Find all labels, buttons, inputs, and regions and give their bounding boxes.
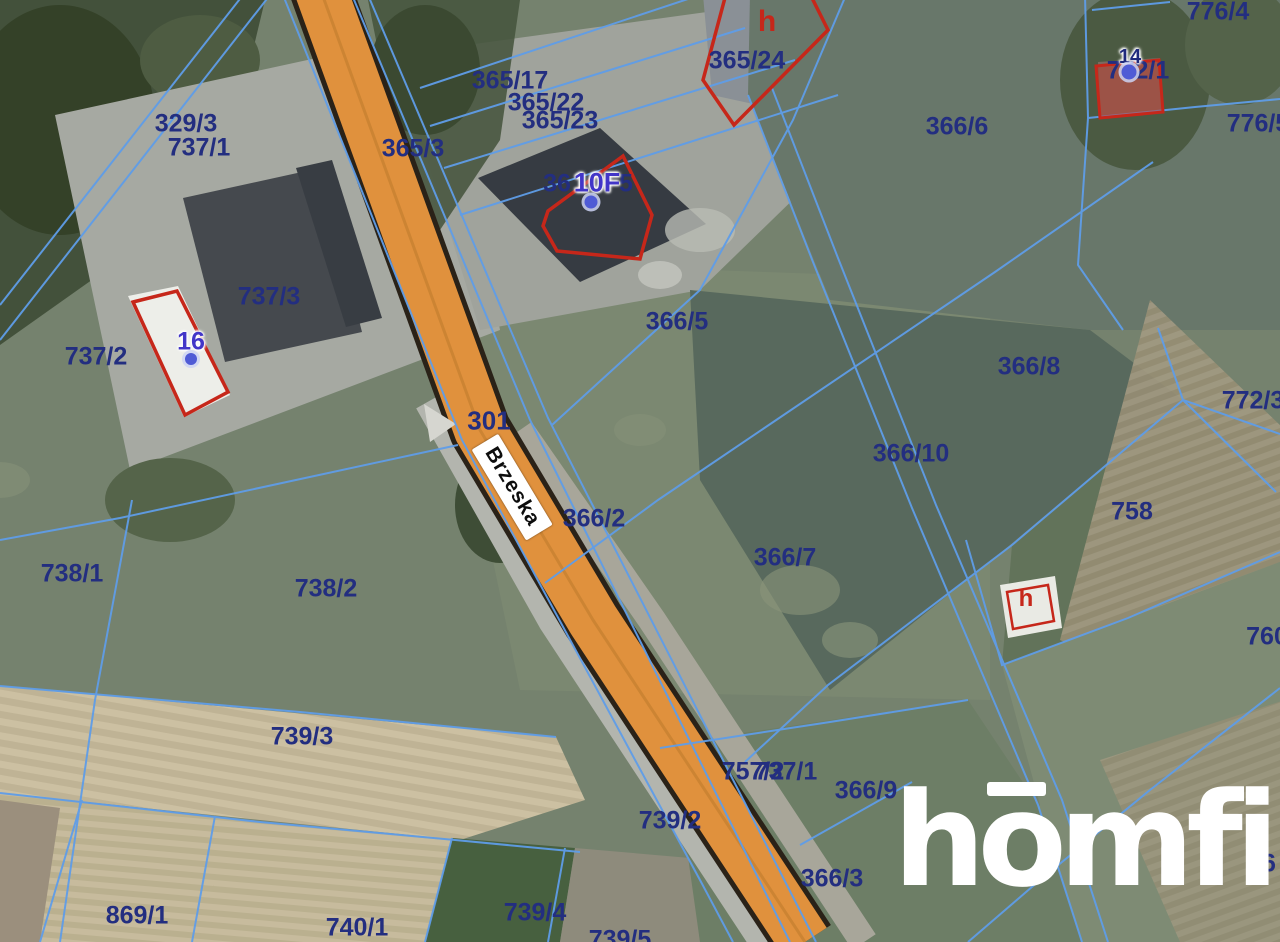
- parcel-label-365-3: 365/3: [382, 137, 445, 162]
- parcel-label-739-3: 739/3: [271, 725, 334, 750]
- address-point-10F: [585, 196, 598, 209]
- parcel-label-366-9: 366/9: [835, 779, 898, 804]
- parcel-label-760: 760: [1246, 625, 1280, 650]
- logo-letter-h: h: [893, 764, 978, 916]
- parcel-label-366-2: 366/2: [563, 507, 626, 532]
- address-point-16: [185, 353, 197, 365]
- parcel-label-366-10: 366/10: [873, 442, 949, 467]
- homfi-logo-watermark: homfi: [893, 775, 1271, 905]
- parcel-label-737-2: 737/2: [65, 345, 128, 370]
- cadastral-aerial-map[interactable]: 329/3737/1365/17365/22365/23365/3365/243…: [0, 0, 1280, 942]
- parcel-label-739-2: 739/2: [639, 809, 702, 834]
- parcel-label-772-3: 772/3: [1222, 389, 1280, 414]
- parcel-label-737-1b: 737/1: [755, 760, 818, 785]
- logo-letter-o-macron: o: [978, 775, 1059, 905]
- parcel-label-366-3: 366/3: [801, 867, 864, 892]
- parcel-label-365-23: 365/23: [522, 109, 598, 134]
- parcel-label-365-24: 365/24: [709, 49, 785, 74]
- parcel-label-776-5: 776/5: [1227, 112, 1280, 137]
- building-label-h-top: h: [758, 7, 776, 37]
- parcel-label-737-3: 737/3: [238, 285, 301, 310]
- parcel-label-739-4: 739/4: [504, 901, 567, 926]
- route-number-label: 301: [467, 406, 510, 437]
- parcel-label-366-5: 366/5: [646, 310, 709, 335]
- parcel-label-366-8: 366/8: [998, 355, 1061, 380]
- parcel-label-869-1: 869/1: [106, 904, 169, 929]
- parcel-label-738-1: 738/1: [41, 562, 104, 587]
- logo-letters-mfi: mfi: [1059, 764, 1272, 916]
- parcel-label-fragment-36: 36: [543, 172, 571, 197]
- building-label-h-small: h: [1019, 587, 1034, 611]
- address-point-14: [1122, 65, 1137, 80]
- parcel-label-fragment-5: 5: [619, 172, 633, 197]
- parcel-label-366-6: 366/6: [926, 115, 989, 140]
- parcel-label-366-7: 366/7: [754, 546, 817, 571]
- parcel-label-740-1: 740/1: [326, 916, 389, 941]
- parcel-label-758: 758: [1111, 500, 1153, 525]
- address-label-16: 16: [177, 330, 205, 355]
- parcel-label-739-5: 739/5: [589, 928, 652, 942]
- address-label-10F: 10F: [574, 170, 621, 197]
- parcel-label-737-1: 737/1: [168, 136, 231, 161]
- parcel-label-738-2: 738/2: [295, 577, 358, 602]
- parcel-label-776-4: 776/4: [1187, 0, 1250, 25]
